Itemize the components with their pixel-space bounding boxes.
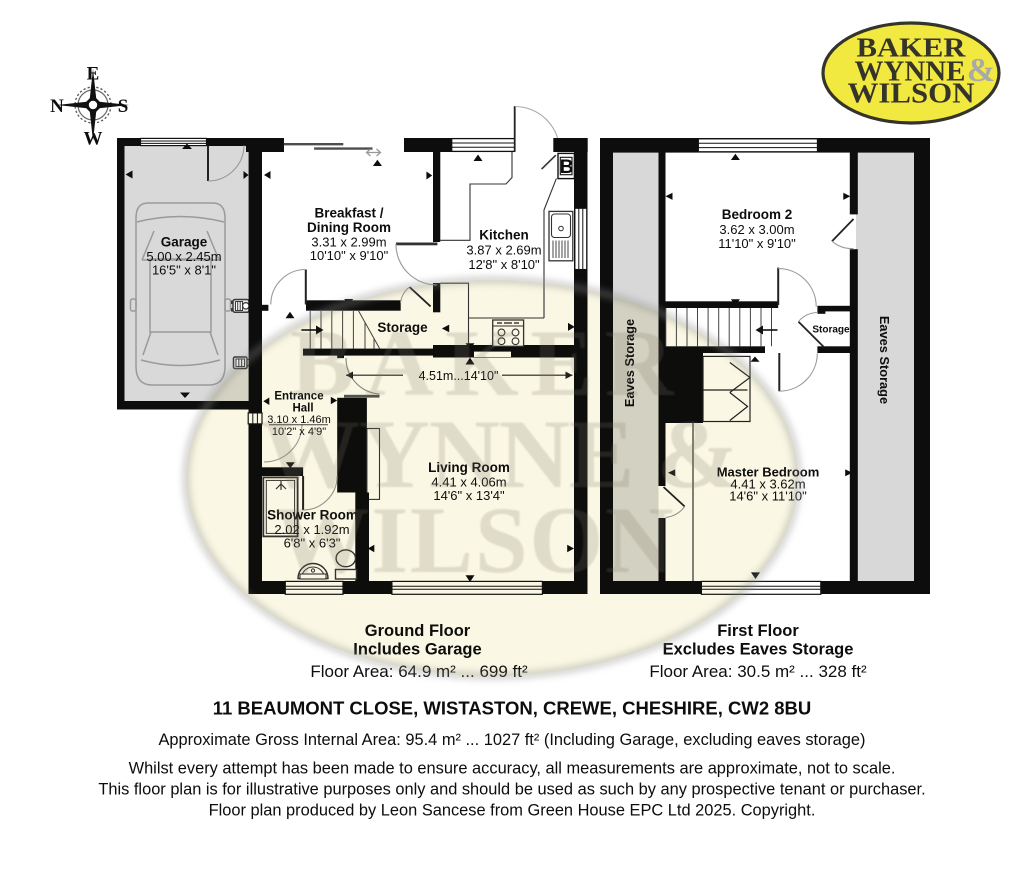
svg-text:WILSON: WILSON: [275, 487, 674, 593]
